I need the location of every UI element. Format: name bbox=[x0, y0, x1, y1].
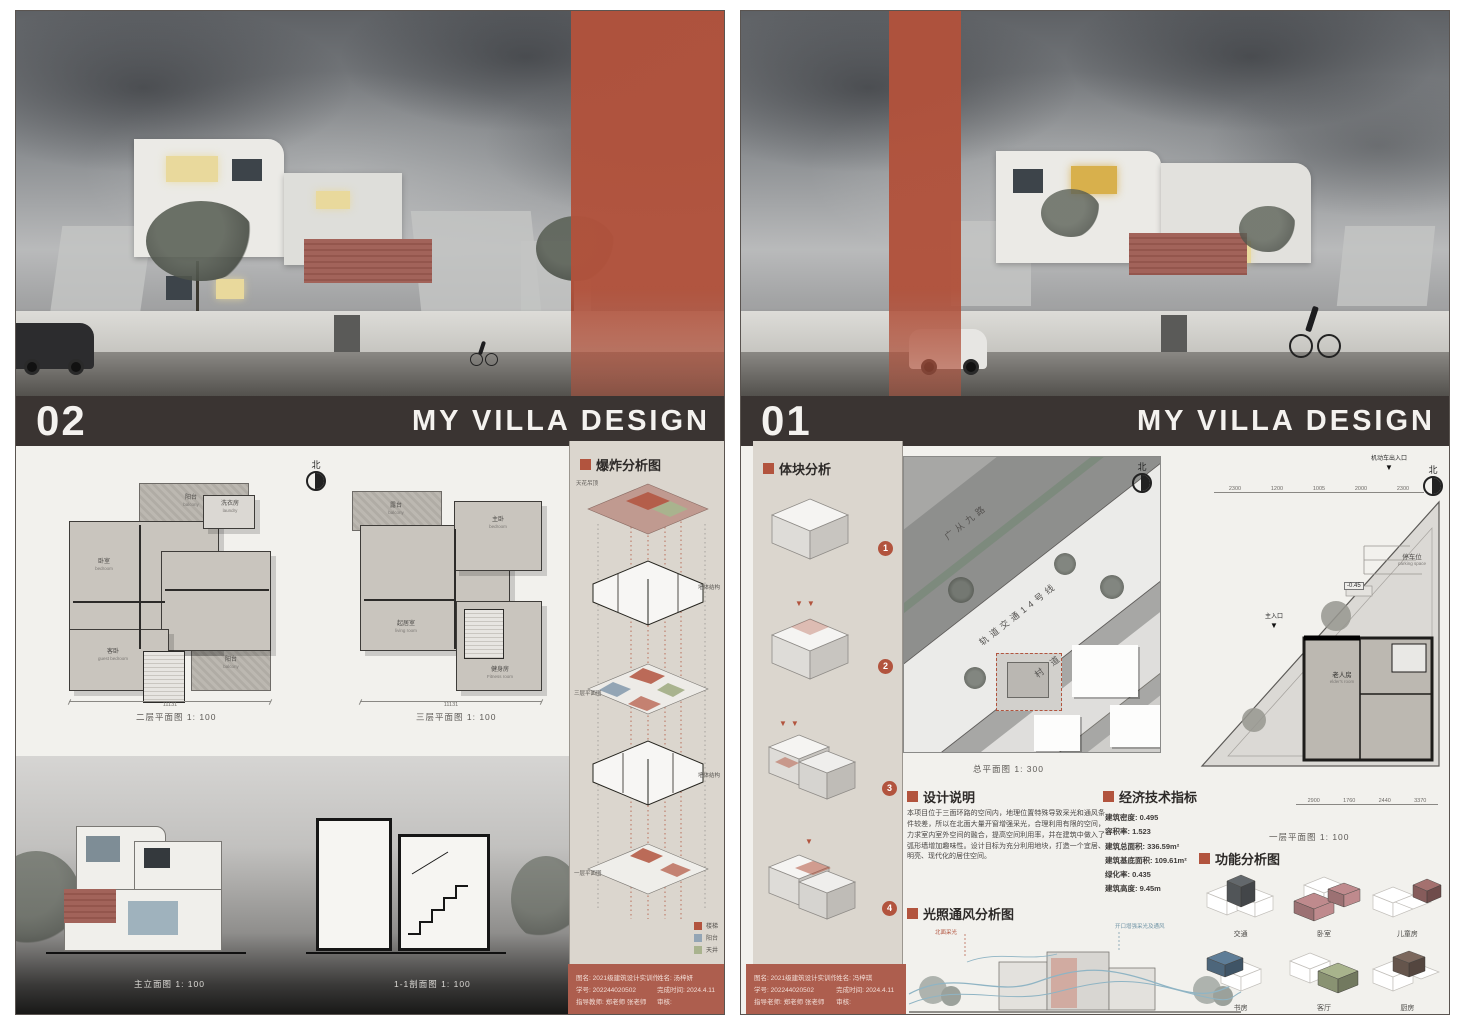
site-plan: 广从九路 轨道交通14号线 村 道 北 bbox=[903, 456, 1161, 753]
vehicle-entry-label: 机动车出入口▼ bbox=[1354, 456, 1424, 473]
function-tile: 客厅 bbox=[1282, 945, 1365, 1013]
title-block-info: 图名: 2021级建筑设计实训作业 姓名: 汤梓妍 学号: 2022440205… bbox=[568, 964, 725, 1015]
step-number: 3 bbox=[882, 781, 897, 796]
tree bbox=[511, 856, 569, 941]
light-heading: 光照通风分析图 bbox=[907, 904, 1014, 923]
plan-slab bbox=[454, 501, 542, 571]
plan3-caption: 三层平面图 1: 100 bbox=[416, 711, 497, 723]
step-number: 2 bbox=[878, 659, 893, 674]
room-label: 客卧guest bedroom bbox=[81, 649, 145, 661]
roof-plants bbox=[1239, 206, 1297, 252]
brick-facade bbox=[304, 239, 432, 283]
building-footprint bbox=[1034, 715, 1080, 751]
room-label: 洗衣房laundry bbox=[207, 501, 253, 513]
function-grid: 交通 卧室 bbox=[1199, 871, 1449, 1013]
step-number: 4 bbox=[882, 901, 897, 916]
light-ventilation-section: 光照通风分析图 北面采光 开口增强采光及通风 bbox=[907, 904, 1247, 1015]
description-heading: 设计说明 bbox=[907, 787, 975, 806]
info-tutor: 指导老师: 郑老师 张老师 bbox=[754, 996, 836, 1006]
wall-line bbox=[454, 529, 456, 649]
background-building bbox=[1337, 226, 1435, 306]
heading-bullet-icon bbox=[763, 463, 774, 474]
exploded-heading: 爆炸分析图 bbox=[580, 455, 661, 474]
cyclist bbox=[468, 339, 498, 369]
room-label: 露台balcony bbox=[366, 503, 426, 515]
villa-render-photo bbox=[16, 11, 724, 396]
elevation-brick bbox=[64, 889, 116, 923]
exploded-layer-label: 天花吊顶 bbox=[576, 479, 598, 487]
massing-heading: 体块分析 bbox=[763, 459, 831, 478]
roof-plants bbox=[1041, 189, 1101, 237]
info-check: 审核: bbox=[836, 996, 898, 1006]
tree bbox=[1100, 575, 1124, 599]
title-block-info: 图名: 2021级建筑设计实训作业 姓名: 冯梓琪 学号: 2022440205… bbox=[746, 964, 906, 1015]
section-stair bbox=[398, 834, 490, 951]
accent-band bbox=[889, 11, 961, 396]
street-ground bbox=[741, 352, 1449, 396]
info-project: 图名: 2021级建筑设计实训作业 bbox=[754, 972, 836, 982]
yard-wall bbox=[741, 311, 1449, 357]
lit-window bbox=[166, 156, 218, 182]
info-id: 学号: 202244020502 bbox=[754, 984, 836, 994]
plan2-caption: 二层平面图 1: 100 bbox=[136, 711, 217, 723]
room-label: 起居室living room bbox=[376, 621, 436, 633]
massing-step-2: ▼▼ 2 bbox=[765, 609, 875, 688]
car-wheel bbox=[963, 359, 979, 375]
legend-item: 楼梯 bbox=[694, 921, 718, 930]
heading-bullet-icon bbox=[1103, 791, 1114, 802]
main-entry-label: 主入口▼ bbox=[1254, 614, 1294, 631]
massing-panel: 体块分析 1 ▼▼ 2 ▼▼ bbox=[753, 441, 903, 964]
push-arrows-icon: ▼▼ bbox=[795, 599, 819, 608]
siteplan-caption: 总平面图 1: 300 bbox=[973, 763, 1044, 775]
floor-plan-3: 露台balcony 主卧bedroom 起居室living room 健身房Fi… bbox=[346, 481, 556, 706]
floor-plan-1: 2300 1200 1005 2000 2300 机动车出入口▼ bbox=[1196, 454, 1446, 826]
info-date: 完成时间: 2024.4.11 bbox=[657, 984, 718, 994]
car-wheel bbox=[68, 359, 84, 375]
poster-board-02: 02 MY VILLA DESIGN 北 阳台balcony 洗衣房laundr… bbox=[15, 10, 725, 1015]
exploded-legend: 楼梯 阳台 天井 bbox=[694, 918, 718, 954]
legend-item: 阳台 bbox=[694, 933, 718, 942]
massing-step-4: ▼ 4 bbox=[765, 845, 875, 930]
room-label: 阳台balcony bbox=[201, 657, 261, 669]
function-tile: 书房 bbox=[1199, 945, 1282, 1013]
elevation-window bbox=[144, 848, 170, 868]
tree bbox=[146, 201, 256, 281]
elevation-window bbox=[86, 836, 120, 862]
poster-board-01: 01 MY VILLA DESIGN 体块分析 1 ▼▼ 2 bbox=[740, 10, 1450, 1015]
exploded-layer-label: 三层平面图 bbox=[574, 689, 602, 697]
ground-line bbox=[46, 952, 246, 954]
parking-label: 停车位parking space bbox=[1382, 554, 1442, 567]
ground-line bbox=[306, 952, 506, 954]
push-arrows-icon: ▼ bbox=[805, 837, 817, 846]
dark-window bbox=[232, 159, 262, 181]
gate bbox=[334, 315, 360, 355]
info-name: 姓名: 冯梓琪 bbox=[836, 972, 898, 982]
info-name: 姓名: 汤梓妍 bbox=[657, 972, 718, 982]
function-tile: 卧室 bbox=[1282, 871, 1365, 939]
wall-line bbox=[139, 525, 141, 649]
dimension-total: 11131 bbox=[360, 701, 542, 708]
lit-window bbox=[216, 279, 244, 299]
info-project: 图名: 2021级建筑设计实训作业 bbox=[576, 972, 657, 982]
north-compass-icon: 北 bbox=[1132, 463, 1152, 493]
villa-render-photo bbox=[741, 11, 1449, 396]
room-label: 主卧bedroom bbox=[468, 517, 528, 529]
room-label: 健身房Fitness room bbox=[468, 667, 532, 679]
lit-window bbox=[316, 191, 350, 209]
wall-line bbox=[364, 599, 456, 601]
board-title: MY VILLA DESIGN bbox=[412, 407, 710, 436]
massing-step-1: 1 bbox=[765, 493, 875, 568]
elevation-window bbox=[128, 901, 178, 935]
indicator-item: 绿化率: 0.435 bbox=[1105, 868, 1187, 882]
plan-slab bbox=[161, 551, 271, 651]
room-label: 卧室bedroom bbox=[79, 559, 129, 571]
heading-bullet-icon bbox=[580, 459, 591, 470]
dimension-row: 2300 1200 1005 2000 2300 bbox=[1214, 486, 1424, 493]
heading-bullet-icon bbox=[907, 791, 918, 802]
light-note-right: 开口增强采光及通风 bbox=[1115, 922, 1165, 930]
wall-line bbox=[165, 589, 269, 591]
info-check: 审核: bbox=[657, 996, 718, 1006]
function-tile: 厨房 bbox=[1366, 945, 1449, 1013]
north-compass-icon: 北 bbox=[1423, 466, 1443, 496]
section-left-cell bbox=[316, 818, 392, 951]
function-tile: 儿童房 bbox=[1366, 871, 1449, 939]
dark-window bbox=[1013, 169, 1043, 193]
indicator-item: 容积率: 1.523 bbox=[1105, 825, 1187, 839]
car-wheel bbox=[24, 359, 40, 375]
floor-plan-2: 阳台balcony 洗衣房laundry 卧室bedroom 客卧guest b… bbox=[61, 481, 311, 706]
brick-facade bbox=[1129, 233, 1247, 275]
level-marker: -0.45 bbox=[1344, 582, 1364, 590]
gate bbox=[1161, 315, 1187, 355]
indicator-item: 建筑高度: 9.45m bbox=[1105, 882, 1187, 896]
stair bbox=[143, 651, 185, 703]
building-footprint bbox=[1072, 645, 1138, 697]
stair bbox=[464, 609, 504, 659]
heading-bullet-icon bbox=[907, 908, 918, 919]
board-number: 01 bbox=[761, 400, 812, 442]
indicator-item: 建筑总面积: 336.59m² bbox=[1105, 840, 1187, 854]
function-heading: 功能分析图 bbox=[1199, 849, 1280, 868]
info-tutor: 指导教师: 郑老师 张老师 bbox=[576, 996, 657, 1006]
massing-step-3: ▼▼ 3 bbox=[765, 727, 875, 810]
step-number: 1 bbox=[878, 541, 893, 556]
indicators-heading: 经济技术指标 bbox=[1103, 787, 1197, 806]
info-date: 完成时间: 2024.4.11 bbox=[836, 984, 898, 994]
wall-line bbox=[73, 601, 165, 603]
indicator-item: 建筑基底面积: 109.61m² bbox=[1105, 854, 1187, 868]
tree bbox=[964, 667, 986, 689]
exploded-layer-label: 墙体结构 bbox=[698, 583, 720, 591]
title-bar: 02 MY VILLA DESIGN bbox=[16, 396, 724, 446]
plan1-caption: 一层平面图 1: 100 bbox=[1269, 831, 1350, 843]
exploded-diagram-panel: 爆炸分析图 bbox=[569, 441, 725, 964]
building-footprint bbox=[1110, 705, 1160, 747]
exploded-axon-svg bbox=[573, 479, 723, 929]
accent-band bbox=[571, 11, 724, 396]
board-title: MY VILLA DESIGN bbox=[1137, 407, 1435, 436]
push-arrows-icon: ▼▼ bbox=[779, 719, 803, 728]
board-number: 02 bbox=[36, 400, 87, 442]
dimension-total: 11131 bbox=[69, 701, 271, 708]
indicators-list: 建筑密度: 0.495 容积率: 1.523 建筑总面积: 336.59m² 建… bbox=[1105, 811, 1187, 897]
tree bbox=[948, 577, 974, 603]
exploded-layer-label: 墙体结构 bbox=[698, 771, 720, 779]
indicator-item: 建筑密度: 0.495 bbox=[1105, 811, 1187, 825]
info-id: 学号: 202244020502 bbox=[576, 984, 657, 994]
dimension-row: 2900 1760 2440 3370 bbox=[1296, 798, 1438, 805]
elevation-caption: 主立面图 1: 100 bbox=[134, 978, 205, 990]
heading-bullet-icon bbox=[1199, 853, 1210, 864]
exploded-layer-label: 一层平面图 bbox=[574, 869, 602, 877]
plan1-svg bbox=[1196, 498, 1446, 788]
tree bbox=[1054, 553, 1076, 575]
elder-room-label: 老人房elder's room bbox=[1314, 672, 1370, 685]
legend-item: 天井 bbox=[694, 945, 718, 954]
section-caption: 1-1剖面图 1: 100 bbox=[394, 978, 471, 990]
cyclist bbox=[1281, 306, 1341, 366]
description-text: 本项目位于三面环路的空间内，地理位置特殊导致采光和通风条件较差，所以在北面大量开… bbox=[907, 809, 1105, 863]
title-bar: 01 MY VILLA DESIGN bbox=[741, 396, 1449, 446]
light-diagram-svg bbox=[907, 932, 1243, 1015]
function-tile: 交通 bbox=[1199, 871, 1282, 939]
elevation-section-strip: 主立面图 1: 100 1-1剖面图 1: 100 bbox=[16, 756, 569, 1015]
